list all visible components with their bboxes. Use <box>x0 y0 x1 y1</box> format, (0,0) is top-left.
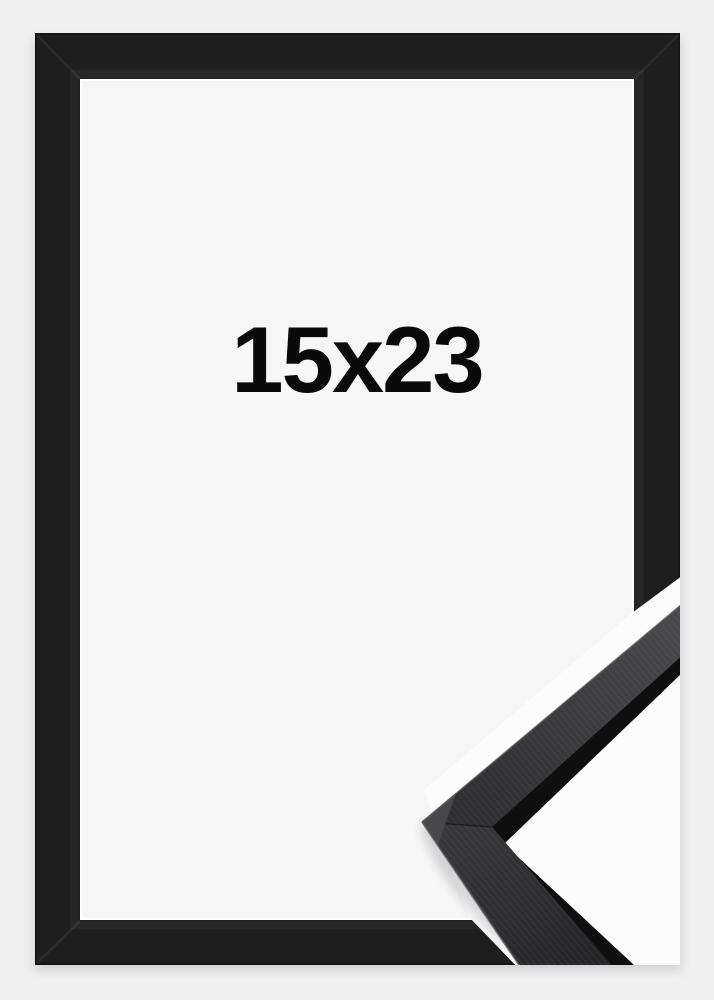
size-label: 15x23 <box>0 313 714 407</box>
frame-product-photo: 15x23 <box>0 0 714 1000</box>
frame-graphic <box>0 0 714 1000</box>
